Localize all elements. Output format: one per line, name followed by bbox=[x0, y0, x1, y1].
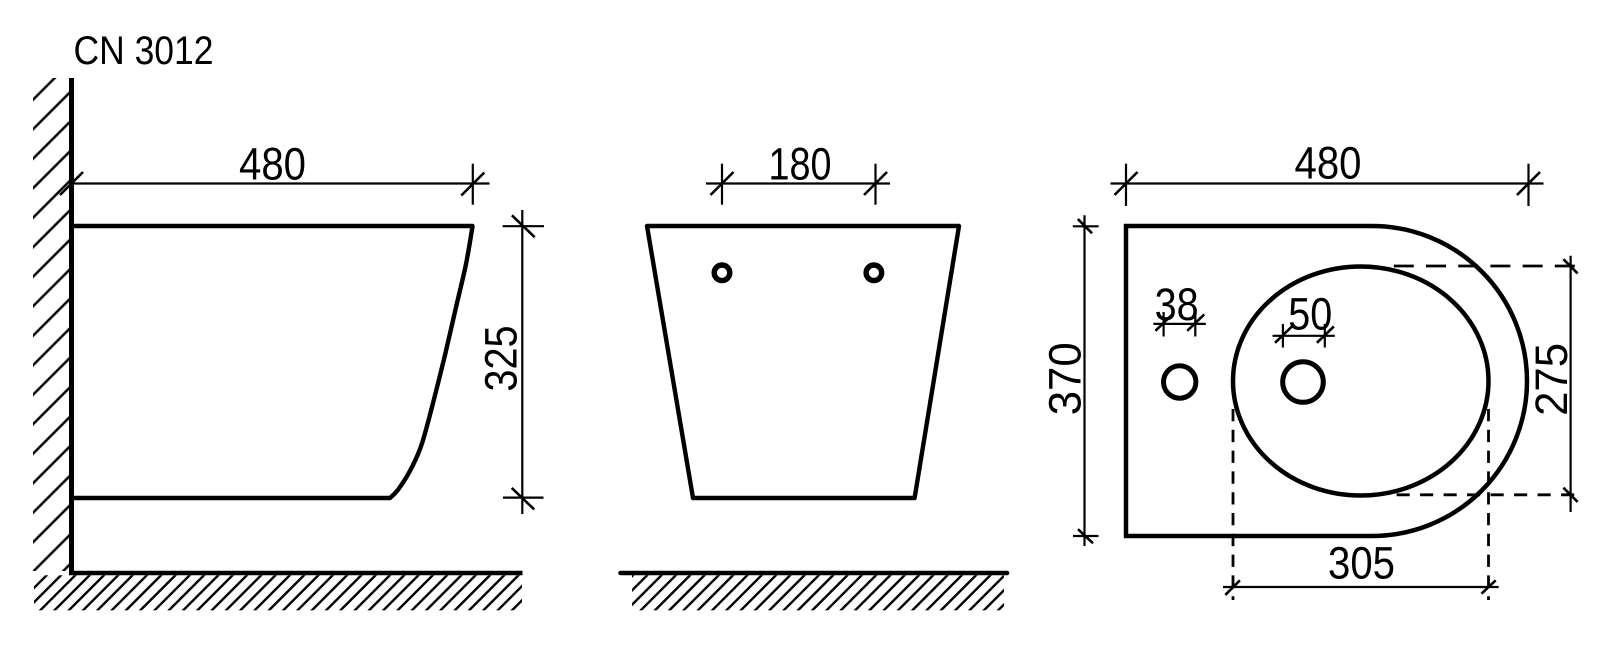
svg-text:480: 480 bbox=[1295, 138, 1362, 189]
svg-text:325: 325 bbox=[476, 326, 527, 392]
svg-text:370: 370 bbox=[1040, 342, 1091, 415]
svg-text:305: 305 bbox=[1328, 538, 1395, 589]
svg-text:CN 3012: CN 3012 bbox=[74, 29, 214, 73]
svg-text:480: 480 bbox=[239, 139, 306, 190]
svg-text:275: 275 bbox=[1526, 343, 1577, 416]
svg-text:50: 50 bbox=[1288, 289, 1332, 340]
svg-text:180: 180 bbox=[769, 139, 832, 190]
svg-text:38: 38 bbox=[1155, 279, 1199, 330]
